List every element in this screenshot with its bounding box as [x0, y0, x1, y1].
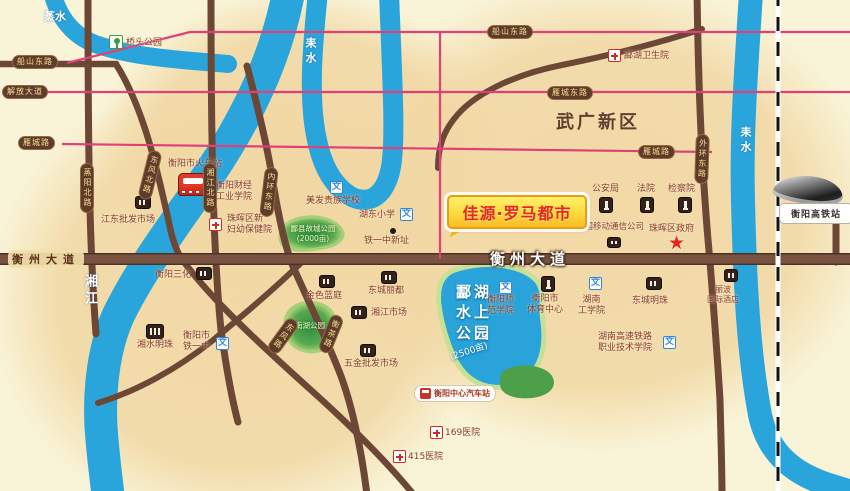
building-icon [646, 277, 662, 290]
government-building-icon [678, 197, 692, 213]
poi-libo-line2: 国际酒店 [707, 295, 739, 305]
gucheng-park-name: 酃县故城公园 [282, 224, 344, 234]
gucheng-park-label: 酃县故城公园 (2000亩) [282, 224, 344, 244]
poi-hunan-institute-line1: 湖南 [578, 295, 605, 306]
telecom-icon [607, 237, 621, 248]
hospital-icon [430, 426, 443, 439]
bus-icon [420, 388, 431, 399]
poi-shifan-line2: 范学院 [487, 306, 514, 317]
poi-tieyizhong-line1: 衡阳市 [183, 331, 210, 342]
road-label-chuanshan-center: 船山东路 [487, 25, 533, 39]
road-label-waihuan: 外环东路 [694, 134, 710, 184]
school-icon: 文 [216, 337, 229, 350]
school-icon: 文 [400, 208, 413, 221]
poi-caijing-line2: 工业学院 [216, 192, 252, 203]
poi-sports-line1: 衡阳市 [527, 294, 563, 305]
poi-qiaotou-park: 桥头公园 [126, 38, 162, 49]
project-name: 佳源·罗马都市 [462, 200, 571, 224]
poi-hudong-school: 湖东小学 [359, 210, 395, 221]
lake-side-green [500, 365, 554, 398]
hospital-icon [393, 450, 406, 463]
poi-shifan-line1: 衡阳师 [487, 295, 514, 306]
poi-fuyou-line2: 妇幼保健院 [227, 225, 272, 236]
poi-xiangjiang-market: 湘江市场 [371, 308, 407, 319]
hospital-icon [608, 49, 621, 62]
poi-central-bus-station: 衡阳中心汽车站 [414, 385, 496, 402]
poi-libo-line1: 丽波 [707, 285, 739, 295]
site-dot-icon [390, 228, 396, 234]
poi-meifa-school: 美发贵族学校 [306, 196, 360, 207]
hengzhou-avenue-label-west: 衡州大道 [8, 250, 84, 268]
poi-railway-college-line1: 湖南高速铁路 [598, 332, 652, 343]
poi-dongcheng-lidu: 东城丽都 [368, 286, 404, 297]
poi-railway-college-line2: 职业技术学院 [598, 343, 652, 354]
poi-415-hospital: 415医院 [408, 452, 443, 463]
poi-sports-center: 衡阳市 体育中心 [527, 294, 563, 317]
poi-xiangshui-mingzhu: 湘水明珠 [137, 340, 173, 351]
government-building-icon [599, 197, 613, 213]
government-building-icon [640, 197, 654, 213]
poi-caijing-line1: 衡阳财经 [216, 181, 252, 192]
poi-hunan-institute-line2: 工学院 [578, 306, 605, 317]
river-label-leishui-center: 耒水 [302, 37, 318, 67]
poi-linghu-clinic: 酃湖卫生院 [624, 51, 669, 62]
poi-caijing-college: 衡阳财经 工业学院 [216, 181, 252, 204]
map-base-layer [0, 0, 850, 491]
poi-tieyizhong-new-site: 铁一中新址 [364, 236, 409, 247]
poi-court: 法院 [637, 184, 655, 195]
hengyang-location-map: 船山东路 船山东路 解放大道 雁城路 雁城东路 雁城路 蒸阳北路 湘江北路 东风… [0, 0, 850, 491]
road-label-jiefang: 解放大道 [2, 85, 48, 99]
star-icon: ★ [668, 234, 685, 253]
road-label-yancheng-east-road: 雁城东路 [547, 86, 593, 100]
road-label-xiangjiangbei: 湘江北路 [203, 163, 217, 213]
poi-procuratorate: 检察院 [668, 184, 695, 195]
road-label-yancheng-east: 雁城路 [638, 145, 675, 159]
building-icon [196, 267, 212, 280]
road-label-yancheng-west: 雁城路 [18, 136, 55, 150]
building-icon [381, 271, 397, 284]
river-label-zhengshui: 蒸水 [44, 8, 66, 24]
poi-shifan-college: 衡阳师 范学院 [487, 295, 514, 318]
hengzhou-avenue-label-center: 衡州大道 [490, 248, 570, 269]
poi-sanhua: 衡阳三化 [155, 270, 191, 281]
poi-dongcheng-mingzhu: 东城明珠 [632, 296, 668, 307]
road-label-zhengyangbei: 蒸阳北路 [80, 163, 94, 213]
school-icon: 文 [330, 181, 343, 194]
poi-jiangdong-market: 江东批发市场 [101, 215, 155, 226]
school-icon: 文 [589, 277, 602, 290]
river-label-leishui-east: 耒水 [737, 126, 753, 156]
poi-hsr-station: 衡阳高铁站 [779, 203, 850, 224]
market-icon [351, 306, 367, 319]
tree-icon [109, 35, 123, 49]
poi-hunan-institute: 湖南 工学院 [578, 295, 605, 318]
school-icon: 文 [663, 336, 676, 349]
poi-169-hospital: 169医院 [445, 428, 480, 439]
road-label-chuanshan-west: 船山东路 [12, 55, 58, 69]
building-icon [146, 324, 164, 339]
poi-public-security-bureau: 公安局 [592, 184, 619, 195]
market-icon [360, 344, 376, 357]
building-icon [319, 275, 335, 288]
poi-fuyou-hospital: 珠晖区新 妇幼保健院 [227, 214, 272, 237]
gucheng-park-area: (2000亩) [282, 234, 344, 244]
poi-tieyizhong-line2: 铁一中 [183, 342, 210, 353]
project-callout: 佳源·罗马都市 [447, 195, 587, 229]
region-label-wuguang: 武广新区 [556, 108, 640, 134]
poi-wujin-market: 五金批发市场 [344, 359, 398, 370]
poi-railway-college: 湖南高速铁路 职业技术学院 [598, 332, 652, 355]
hotel-icon [724, 269, 738, 282]
poi-tieyizhong-school: 衡阳市 铁一中 [183, 331, 210, 354]
school-icon: 文 [499, 281, 512, 294]
poi-jinse-lanting: 金色蓝庭 [306, 291, 342, 302]
poi-libo-hotel: 丽波 国际酒店 [707, 285, 739, 305]
stadium-icon [541, 276, 555, 292]
river-label-xiangjiang: 湘江 [80, 274, 99, 308]
hospital-icon [209, 218, 222, 231]
bus-station-label: 衡阳中心汽车站 [434, 388, 490, 399]
poi-sports-line2: 体育中心 [527, 305, 563, 316]
